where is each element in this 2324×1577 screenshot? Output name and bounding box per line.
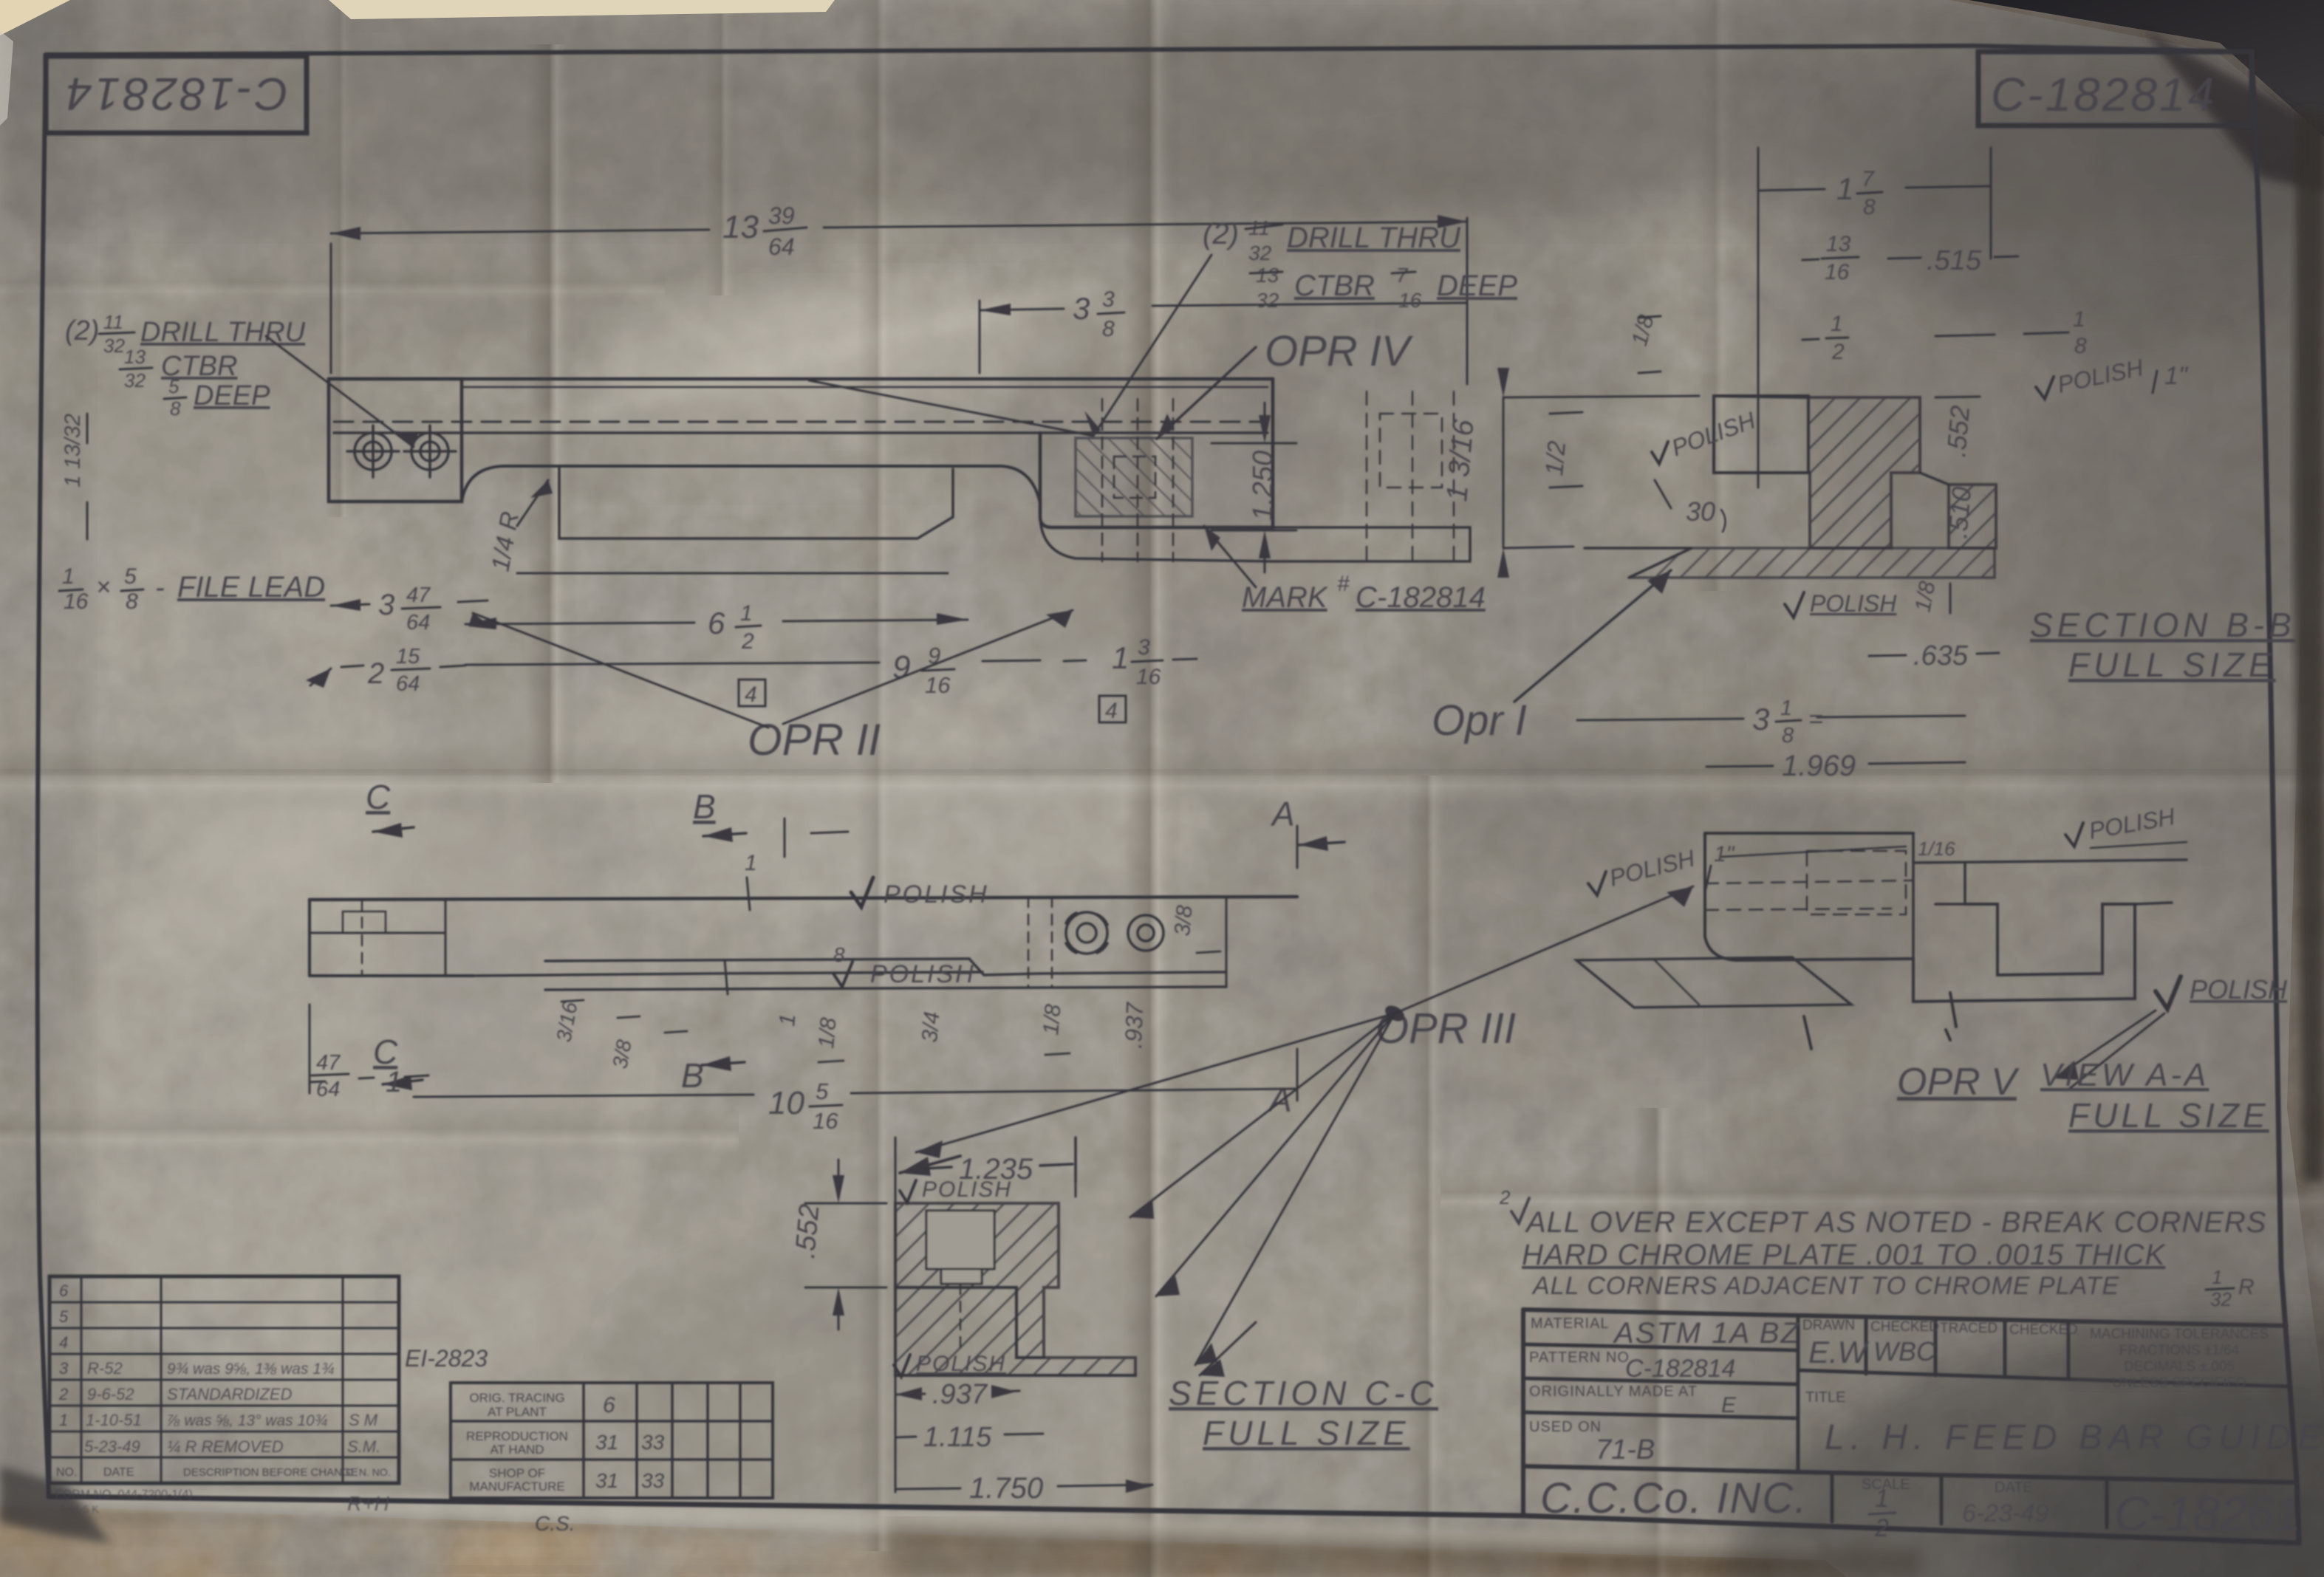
svg-text:1: 1 [62,564,75,589]
svg-text:1/8: 1/8 [1039,1003,1066,1036]
svg-text:.552: .552 [790,1203,825,1259]
svg-text:FORM NO. 044-7200-1(4): FORM NO. 044-7200-1(4) [55,1488,193,1501]
svg-text:R-52: R-52 [87,1359,123,1378]
svg-text:32: 32 [1248,242,1272,264]
svg-text:47: 47 [316,1051,341,1075]
svg-text:3: 3 [1138,635,1150,660]
svg-text:VIEW A-A: VIEW A-A [2040,1057,2209,1093]
svg-text:OPR II: OPR II [748,715,881,764]
svg-text:47: 47 [406,584,431,607]
svg-text:4: 4 [745,683,757,707]
svg-text:REPRODUCTION: REPRODUCTION [466,1429,568,1443]
svg-text:15: 15 [396,645,420,668]
svg-text:R+H: R+H [347,1492,390,1515]
svg-text:11: 11 [103,311,123,333]
svg-text:32: 32 [124,369,146,391]
svg-text:1: 1 [1112,640,1129,675]
svg-text:1 13/32: 1 13/32 [61,414,85,488]
svg-text:=: = [1808,705,1823,733]
svg-text:R: R [2238,1275,2255,1299]
svg-text:2: 2 [1831,340,1845,364]
svg-text:L. H. FEED BAR GUIDE: L. H. FEED BAR GUIDE [1825,1418,2324,1457]
svg-text:POLISH: POLISH [1810,590,1897,617]
svg-text:64: 64 [406,611,430,634]
svg-text:ORIG. TRACING: ORIG. TRACING [469,1391,564,1405]
svg-text:10: 10 [768,1085,804,1121]
svg-text:1/16: 1/16 [1918,838,1955,860]
svg-text:1: 1 [745,851,757,875]
svg-text:C-182814: C-182814 [64,68,288,119]
svg-text:S M: S M [349,1411,378,1429]
svg-text:1.750: 1.750 [969,1472,1043,1505]
svg-text:3/4: 3/4 [917,1010,945,1043]
svg-text:(2): (2) [65,315,99,346]
svg-text:2: 2 [741,629,754,654]
svg-text:13: 13 [124,346,146,368]
svg-text:DRILL THRU: DRILL THRU [140,317,306,348]
svg-text:7: 7 [1862,167,1875,191]
svg-text:STANDARDIZED: STANDARDIZED [167,1385,293,1403]
svg-text:64: 64 [396,672,420,696]
svg-text:8: 8 [2074,334,2087,358]
svg-text:.515: .515 [1927,245,1982,276]
svg-text:SHOP OF: SHOP OF [489,1466,545,1480]
svg-text:3/8: 3/8 [1170,904,1197,937]
svg-text:16: 16 [925,672,951,698]
svg-text:5-23-49: 5-23-49 [84,1437,140,1456]
svg-text:8: 8 [1102,317,1115,341]
svg-text:13: 13 [1256,264,1279,287]
svg-text:71-B: 71-B [1596,1434,1655,1465]
svg-text:DESCRIPTION BEFORE CHANGE: DESCRIPTION BEFORE CHANGE [183,1466,358,1479]
svg-text:E: E [1721,1393,1737,1417]
svg-text:64: 64 [768,233,795,260]
svg-text:TRACED: TRACED [1940,1321,1997,1336]
svg-text:POLISH: POLISH [916,1352,1006,1376]
svg-text:2: 2 [58,1385,68,1403]
svg-text:1": 1" [1714,842,1735,866]
svg-text:FULL SIZE: FULL SIZE [2068,646,2276,684]
svg-text:.937: .937 [1120,1002,1148,1050]
svg-text:6: 6 [603,1393,615,1417]
svg-text:3: 3 [1752,702,1769,736]
svg-text:DEEP: DEEP [1437,270,1517,302]
svg-text:1-10-51: 1-10-51 [86,1411,142,1429]
svg-text:13: 13 [722,209,759,245]
svg-text:30: 30 [1686,496,1715,527]
svg-text:AT PLANT: AT PLANT [488,1405,547,1419]
svg-text:×: × [96,573,111,601]
svg-text:FULL SIZE: FULL SIZE [2068,1096,2269,1135]
svg-text:POLISH: POLISH [922,1177,1012,1202]
svg-text:16: 16 [64,589,89,614]
svg-text:A: A [1267,1081,1292,1119]
svg-text:EI-2823: EI-2823 [405,1345,488,1372]
svg-text:E.W: E.W [1808,1335,1870,1369]
svg-text:POLISH: POLISH [884,880,989,909]
svg-text:7: 7 [1396,264,1409,287]
svg-text:-: - [155,572,165,603]
svg-text:8: 8 [1863,195,1876,219]
svg-text:8: 8 [170,397,181,420]
svg-text:C.S.: C.S. [535,1512,575,1535]
svg-text:1: 1 [2073,307,2085,332]
svg-text:.937: .937 [932,1379,988,1410]
svg-text:6: 6 [59,1282,69,1300]
svg-text:1: 1 [775,1013,800,1027]
svg-text:5: 5 [124,564,137,589]
svg-text:#: # [1337,572,1350,596]
svg-text:1: 1 [1875,1485,1889,1513]
svg-text:DATE: DATE [103,1466,134,1479]
svg-text:1.969: 1.969 [1782,750,1856,782]
svg-text:16: 16 [1398,289,1422,312]
svg-text:3: 3 [1073,291,1090,326]
svg-text:NO.: NO. [56,1466,77,1479]
svg-text:5: 5 [168,375,180,397]
svg-text:C.C.Co. INC.: C.C.Co. INC. [1540,1474,1808,1522]
svg-text:SECTION C-C: SECTION C-C [1169,1374,1438,1412]
svg-text:1.115: 1.115 [923,1422,992,1453]
svg-text:6: 6 [708,606,725,640]
svg-text:ORIGINALLY MADE AT: ORIGINALLY MADE AT [1529,1383,1698,1400]
svg-text:.510: .510 [1942,485,1977,539]
svg-text:C-182814: C-182814 [1625,1355,1735,1383]
svg-text:8: 8 [833,943,845,966]
svg-text:ALL CORNERS ADJACENT TO CHROME: ALL CORNERS ADJACENT TO CHROME PLATE [1531,1272,2119,1300]
svg-text:4: 4 [1105,699,1118,723]
svg-text:OPR IV: OPR IV [1265,327,1414,375]
svg-text:1": 1" [2164,362,2189,390]
svg-text:Opr I: Opr I [1432,697,1527,745]
svg-text:1: 1 [740,601,753,626]
svg-text:POLISH: POLISH [870,960,976,988]
svg-text:ALL OVER EXCEPT AS NOTED - BRE: ALL OVER EXCEPT AS NOTED - BREAK CORNERS [1525,1206,2266,1239]
svg-text:C-182814: C-182814 [1991,68,2216,121]
svg-text:32: 32 [1256,289,1279,312]
svg-text:1: 1 [1780,697,1792,720]
svg-text:TITLE: TITLE [1805,1389,1845,1406]
svg-text:CHECKED: CHECKED [2009,1322,2078,1338]
svg-text:1: 1 [1836,171,1853,206]
svg-text:2: 2 [367,657,384,690]
svg-text:(2): (2) [1203,218,1239,250]
svg-text:⅞ was ⅝, 13° was 10¾: ⅞ was ⅝, 13° was 10¾ [167,1412,327,1429]
svg-text:16: 16 [813,1108,838,1134]
svg-text:WBC: WBC [1873,1336,1936,1366]
svg-text:1: 1 [1831,312,1843,336]
svg-text:PATTERN NO.: PATTERN NO. [1529,1349,1634,1366]
svg-text:MATERIAL: MATERIAL [1531,1316,1610,1332]
svg-text:6-23-49: 6-23-49 [1962,1499,2048,1528]
svg-text:8: 8 [126,589,138,614]
svg-text:2: 2 [1499,1186,1511,1208]
svg-text:8: 8 [1782,724,1794,748]
svg-text:.635: .635 [1913,640,1969,671]
svg-text:C-18261: C-18261 [2114,1486,2301,1541]
svg-text:1.250: 1.250 [1248,451,1279,521]
svg-text:1: 1 [386,1066,402,1098]
svg-text:39: 39 [768,202,795,229]
svg-text:31: 31 [595,1431,618,1454]
svg-text:1: 1 [2212,1266,2222,1288]
svg-text:3: 3 [59,1359,69,1378]
svg-text:5: 5 [59,1307,69,1326]
svg-text:4-51-5 K: 4-51-5 K [59,1503,99,1515]
svg-text:13: 13 [1826,232,1851,256]
svg-text:POLISH: POLISH [2190,974,2288,1005]
svg-text:SECTION B-B: SECTION B-B [2030,606,2296,644]
svg-text:1/8: 1/8 [814,1016,841,1050]
svg-text:C. N. NO.: C. N. NO. [346,1466,391,1478]
svg-text:64: 64 [316,1078,340,1101]
svg-text:ASTM 1A BZ: ASTM 1A BZ [1613,1317,1800,1349]
svg-text:31: 31 [595,1469,618,1492]
svg-text:16: 16 [1136,665,1161,689]
svg-text:HARD CHROME PLATE .001 TO .001: HARD CHROME PLATE .001 TO .0015 THICK [1522,1239,2167,1271]
svg-text:3: 3 [378,589,394,621]
svg-text:USED ON: USED ON [1529,1419,1602,1435]
svg-text:3: 3 [1102,287,1115,312]
svg-text:S.M.: S.M. [347,1437,380,1456]
svg-text:AT HAND: AT HAND [490,1443,544,1457]
svg-text:B: B [681,1056,704,1095]
svg-text:CHECKED: CHECKED [1870,1319,1939,1335]
svg-text:C: C [366,778,391,816]
svg-text:DRILL THRU: DRILL THRU [1287,222,1461,254]
svg-text:32: 32 [2210,1288,2232,1310]
svg-text:9-6-52: 9-6-52 [87,1385,134,1403]
svg-text:OPR V: OPR V [1897,1061,2020,1104]
svg-text:B: B [693,787,716,826]
svg-text:C-182814: C-182814 [1356,581,1486,614]
svg-text:A: A [1270,795,1295,833]
svg-text:4: 4 [59,1333,68,1352]
svg-text:2: 2 [1874,1514,1889,1542]
svg-text:33: 33 [641,1431,665,1454]
svg-text:1: 1 [59,1411,68,1429]
svg-text:DEEP: DEEP [194,380,270,411]
svg-text:CTBR: CTBR [1294,270,1375,302]
svg-text:32: 32 [103,335,125,357]
svg-text:FILE LEAD: FILE LEAD [177,571,325,603]
svg-text:33: 33 [641,1469,665,1492]
svg-text:FULL SIZE: FULL SIZE [1203,1414,1410,1452]
svg-text:.552: .552 [1941,404,1975,458]
svg-text:DRAWN: DRAWN [1802,1318,1855,1333]
svg-text:1/2: 1/2 [1540,439,1571,476]
svg-text:16: 16 [1825,260,1850,284]
svg-text:9¾ was 9⅝, 1⅜ was 1¾: 9¾ was 9⅝, 1⅜ was 1¾ [167,1361,334,1378]
svg-text:DATE: DATE [1995,1479,2033,1496]
svg-text:MANUFACTURE: MANUFACTURE [469,1479,564,1494]
svg-text:¼ R REMOVED: ¼ R REMOVED [167,1437,284,1456]
svg-text:5: 5 [816,1078,829,1104]
